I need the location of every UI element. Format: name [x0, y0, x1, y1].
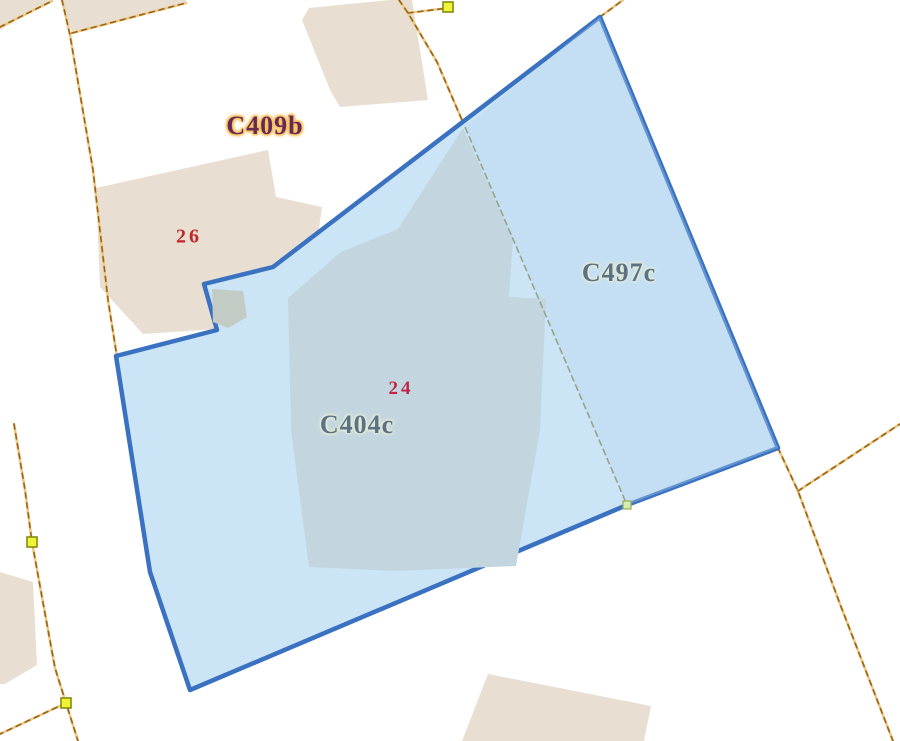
house-number-24: 24 [389, 378, 414, 400]
map-canvas[interactable]: C409b 26 C497c 24 C404c [0, 0, 900, 741]
vertex-marker-southwest-lower[interactable] [61, 698, 71, 708]
vertex-marker-top[interactable] [443, 2, 453, 12]
house-number-26: 26 [176, 226, 202, 249]
map-vector-layer [0, 0, 900, 741]
divider-node-marker[interactable] [623, 501, 631, 509]
building-footprint-left-edge [0, 572, 37, 684]
vertex-marker-southwest-upper[interactable] [27, 537, 37, 547]
parcel-label-c404c: C404c [320, 410, 394, 440]
parcel-label-c497c: C497c [582, 258, 656, 288]
parcel-label-c409b: C409b [226, 111, 303, 141]
